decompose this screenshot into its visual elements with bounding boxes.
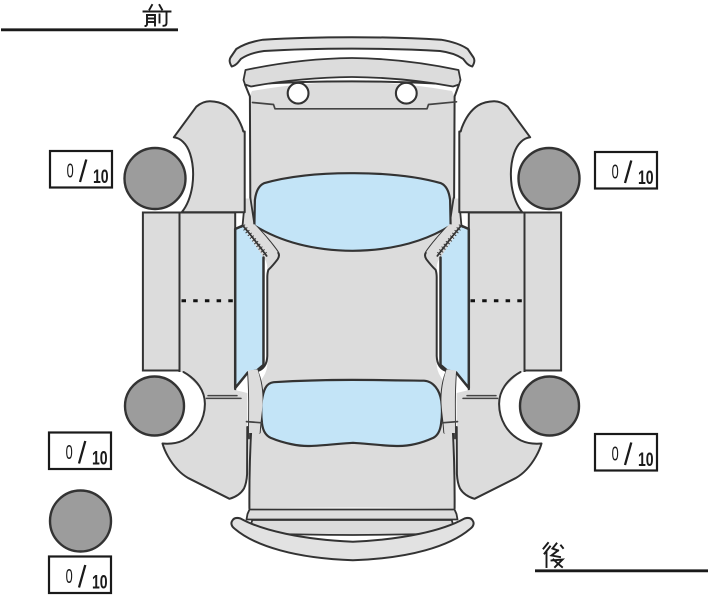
svg-text:0: 0: [612, 442, 619, 465]
svg-text:0: 0: [66, 565, 73, 588]
svg-text:10: 10: [638, 167, 654, 189]
svg-text:10: 10: [638, 449, 654, 471]
svg-text:10: 10: [92, 447, 108, 469]
svg-text:0: 0: [612, 160, 619, 183]
svg-text:0: 0: [67, 159, 74, 182]
svg-text:0: 0: [66, 441, 73, 464]
svg-text:10: 10: [92, 571, 108, 593]
svg-text:10: 10: [93, 166, 109, 188]
